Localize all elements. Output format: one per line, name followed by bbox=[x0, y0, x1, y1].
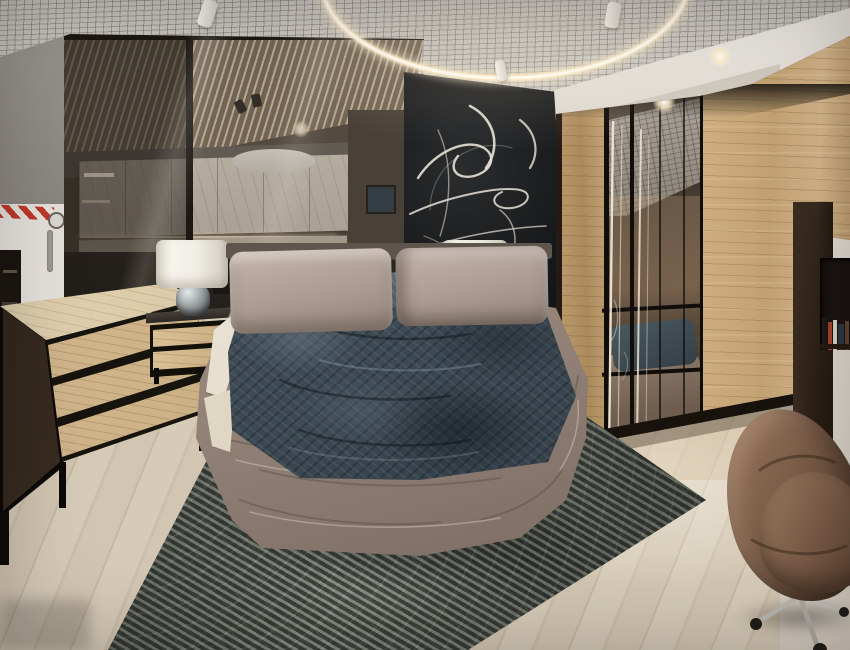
downlight-glow bbox=[708, 44, 732, 68]
showroom-photo bbox=[0, 0, 850, 650]
ring-light bbox=[0, 0, 850, 650]
